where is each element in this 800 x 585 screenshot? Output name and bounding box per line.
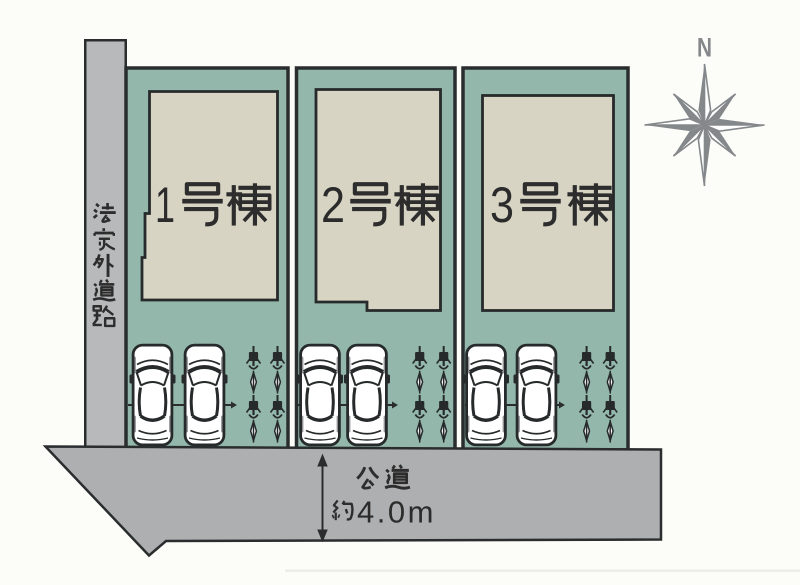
svg-text:4.0m: 4.0m [357,495,436,530]
svg-text:2: 2 [321,177,345,233]
svg-text:1: 1 [155,177,175,233]
svg-text:3: 3 [490,177,514,233]
svg-text:N: N [697,33,712,63]
